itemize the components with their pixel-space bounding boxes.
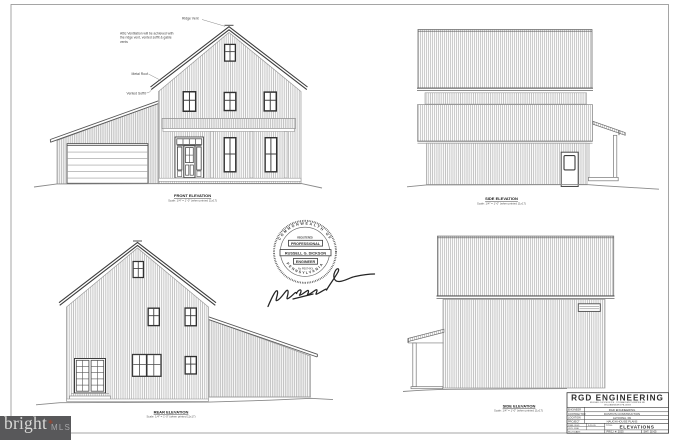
svg-text:PROJECT: PROJECT <box>568 420 580 423</box>
svg-text:RUSSELL DICKSON P.E., 123 MADD: RUSSELL DICKSON P.E., 123 MADDEN TURNPIK… <box>590 401 646 404</box>
svg-text:REAR ELEVATION: REAR ELEVATION <box>154 409 189 414</box>
svg-text:SIDE ELEVATION: SIDE ELEVATION <box>485 196 518 201</box>
svg-text:Scale: 1/4" = 1'-0" (when prin: Scale: 1/4" = 1'-0" (when printed 11x17) <box>168 199 217 203</box>
svg-text:WILLIAMSBURG PA 16693: WILLIAMSBURG PA 16693 <box>604 404 631 407</box>
svg-text:Scale: 1/4" = 1'-0" (when prin: Scale: 1/4" = 1'-0" (when printed 11x17) <box>494 409 543 413</box>
svg-text:CK'D: RGD: CK'D: RGD <box>568 428 580 430</box>
svg-text:RUSSELL G. DICKSON: RUSSELL G. DICKSON <box>285 251 327 255</box>
svg-text:FRONT ELEVATION: FRONT ELEVATION <box>174 193 211 198</box>
svg-text:ENGINEER: ENGINEER <box>296 260 316 264</box>
svg-text:SHT: 02-05: SHT: 02-05 <box>644 430 658 434</box>
svg-text:TITLE:: TITLE: <box>606 425 613 427</box>
svg-text:ENGINEER: ENGINEER <box>568 409 581 412</box>
svg-text:PROJ. #: 2025: PROJ. #: 2025 <box>607 430 625 434</box>
svg-text:Ridge Vent: Ridge Vent <box>182 16 199 20</box>
svg-text:DWN: RGD: DWN: RGD <box>568 425 580 427</box>
svg-text:Scale: 1/4" = 1'-0" (when prin: Scale: 1/4" = 1'-0" (when printed 11x17) <box>477 201 526 205</box>
svg-text:PLOT DATE:: PLOT DATE: <box>568 431 581 434</box>
svg-text:Metal Roof: Metal Roof <box>132 72 148 76</box>
svg-text:9-20-05: 9-20-05 <box>588 425 596 427</box>
svg-text:PROFESSIONAL: PROFESSIONAL <box>291 242 321 246</box>
svg-text:LOCATION: LOCATION <box>568 417 581 420</box>
svg-text:No PE074XX: No PE074XX <box>298 266 314 270</box>
svg-text:vents: vents <box>120 40 128 44</box>
svg-text:Scale: 1/4" = 1'-0" (when prin: Scale: 1/4" = 1'-0" (when printed 11x17) <box>146 415 195 419</box>
svg-text:REGISTERED: REGISTERED <box>297 237 313 240</box>
svg-text:CONTRACTOR: CONTRACTOR <box>568 413 586 416</box>
svg-text:Vented Soffit: Vented Soffit <box>127 92 146 96</box>
svg-text:HAUGH HOUSE PLANS: HAUGH HOUSE PLANS <box>607 420 638 424</box>
